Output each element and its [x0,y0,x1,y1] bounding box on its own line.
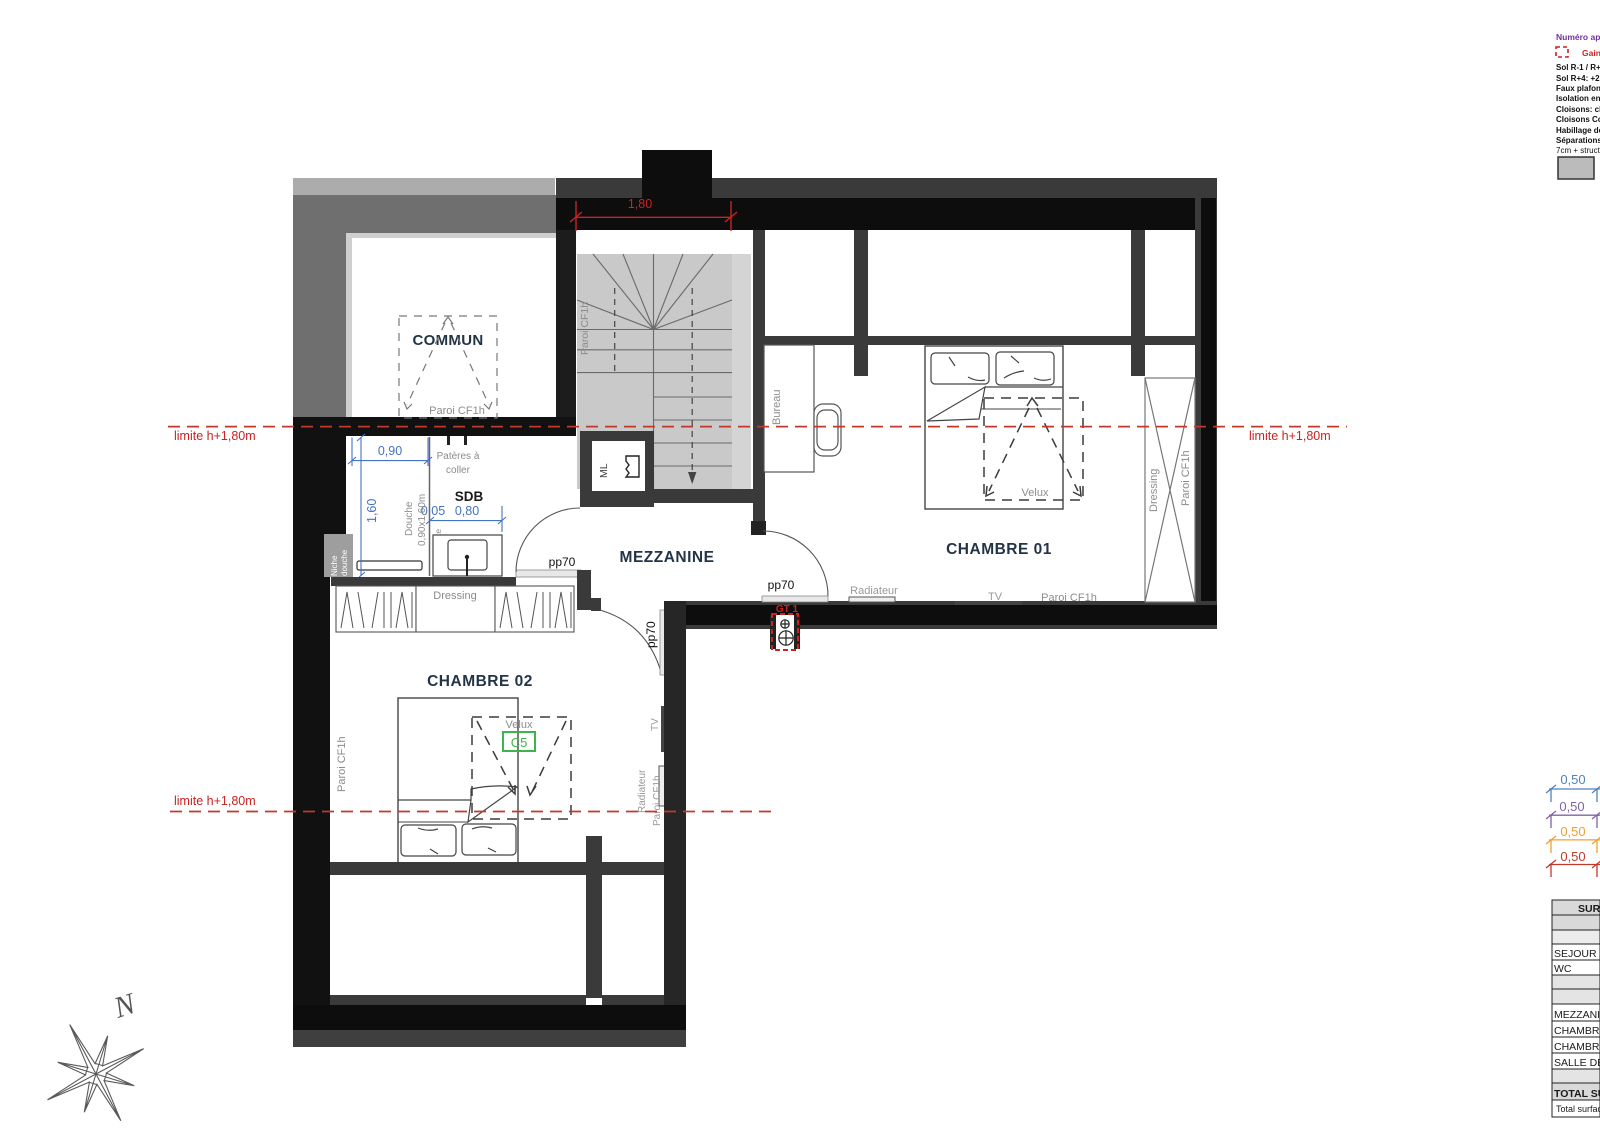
svg-text:TOTAL SU: TOTAL SU [1554,1088,1600,1100]
svg-text:Cloisons: cloisons plaqu: Cloisons: cloisons plaqu [1556,105,1600,114]
svg-text:1,80: 1,80 [628,197,652,211]
svg-text:Dressing: Dressing [1148,469,1160,512]
svg-text:C5: C5 [511,735,528,750]
svg-text:SEJOUR / C: SEJOUR / C [1554,948,1600,960]
svg-text:SALLE DE: SALLE DE [1554,1057,1600,1069]
svg-text:CHAMBRE: CHAMBRE [1554,1025,1600,1037]
svg-text:Séparations entre logem: Séparations entre logem [1556,136,1600,145]
svg-text:CHAMBRE 02: CHAMBRE 02 [427,673,533,690]
svg-text:ML: ML [598,463,610,478]
svg-text:Total surfac: Total surfac [1556,1104,1600,1114]
svg-text:pp70: pp70 [644,621,658,648]
svg-text:0,90x1,60m: 0,90x1,60m [417,494,428,546]
svg-text:Patères à: Patères à [437,451,480,462]
svg-text:GT 1: GT 1 [776,604,799,615]
svg-text:0,80: 0,80 [455,504,479,518]
svg-text:CHAMBRE 01: CHAMBRE 01 [946,541,1052,558]
svg-text:Cloisons Coupe-feu 1h: Cloisons Coupe-feu 1h [1556,115,1600,124]
svg-text:Bureau: Bureau [771,390,783,425]
svg-text:Radiateur: Radiateur [637,769,648,813]
svg-text:limite h+1,80m: limite h+1,80m [174,429,256,443]
svg-text:limite h+1,80m: limite h+1,80m [174,794,256,808]
svg-text:MEZZANIN: MEZZANIN [1554,1009,1600,1021]
svg-text:1,60: 1,60 [365,499,379,523]
svg-text:0,50: 0,50 [1560,824,1585,839]
svg-text:COMMUN: COMMUN [413,332,484,349]
svg-text:Dressing: Dressing [433,590,476,602]
svg-text:SDB: SDB [455,489,484,504]
svg-text:0,90: 0,90 [378,444,402,458]
svg-text:Paroi CF1h: Paroi CF1h [579,302,591,355]
svg-text:Gaine: Gaine [1582,48,1600,58]
svg-text:CHAMBRE: CHAMBRE [1554,1041,1600,1053]
svg-text:pp70: pp70 [768,578,795,592]
svg-text:douche: douche [340,549,349,576]
svg-text:Sol R-1 / R+1/R+2/R+3 :: Sol R-1 / R+1/R+2/R+3 : [1556,63,1600,72]
svg-text:Paroi CF1h: Paroi CF1h [1180,450,1192,506]
svg-text:limite h+1,80m: limite h+1,80m [1249,429,1331,443]
svg-text:0,50: 0,50 [1559,799,1584,814]
svg-text:MEZZANINE: MEZZANINE [620,549,715,566]
svg-text:Douche: Douche [404,501,415,536]
svg-text:Paroi CF1h: Paroi CF1h [1041,592,1097,604]
svg-text:Velux: Velux [506,719,533,731]
svg-text:SURFACES: SURFACES [1578,903,1600,915]
svg-text:WC: WC [1554,963,1572,975]
svg-text:Radiateur: Radiateur [850,585,898,597]
svg-text:0,50: 0,50 [1560,849,1585,864]
svg-text:Niche: Niche [330,555,339,576]
svg-text:Paroi CF1h: Paroi CF1h [336,736,348,792]
svg-text:Sol R+4: +2,62m / Toiture: Sol R+4: +2,62m / Toiture [1556,74,1600,83]
svg-text:Habillage des murs en p: Habillage des murs en p [1556,126,1600,135]
svg-text:coller: coller [446,465,471,476]
svg-text:Paroi CF1h: Paroi CF1h [652,775,663,826]
svg-text:Paroi CF1h: Paroi CF1h [429,405,485,417]
svg-text:Numéro appartement: Numéro appartement [1556,32,1600,42]
svg-text:Velux: Velux [1022,487,1049,499]
svg-text:Isolation en laine de verr: Isolation en laine de verr [1556,94,1600,103]
svg-text:7cm + structure métalliqu: 7cm + structure métalliqu [1556,146,1600,155]
svg-text:Faux plafonds plaque de: Faux plafonds plaque de [1556,84,1600,93]
svg-text:pp70: pp70 [549,555,576,569]
svg-text:0,50: 0,50 [1560,772,1585,787]
svg-text:TV: TV [650,718,661,731]
